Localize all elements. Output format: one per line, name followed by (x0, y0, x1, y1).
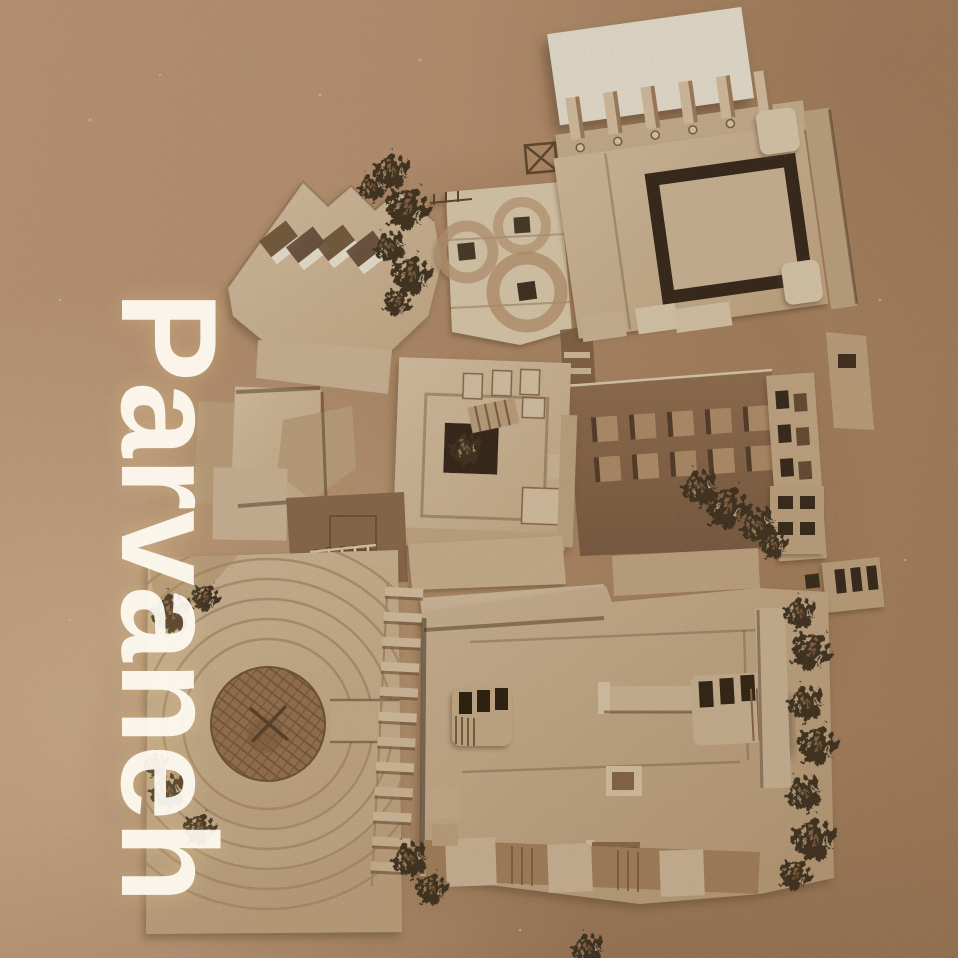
photo-canvas: Parvaneh (0, 0, 958, 958)
model-svg (0, 0, 958, 958)
film-grain-light (0, 0, 958, 958)
